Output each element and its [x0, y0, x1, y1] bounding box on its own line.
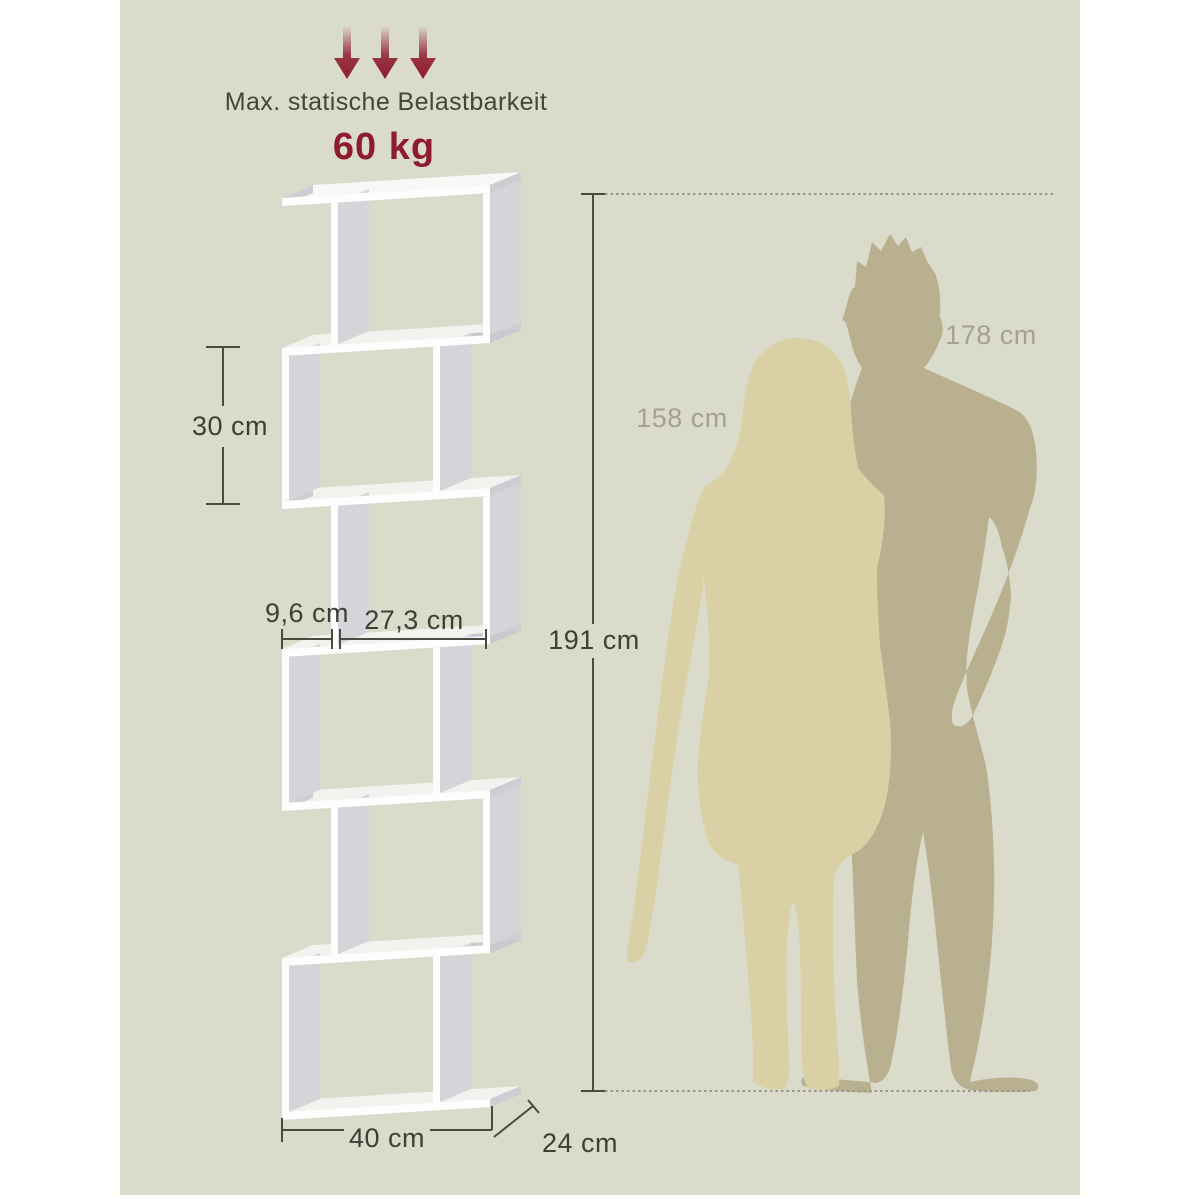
man-height-label: 178 cm [916, 321, 1066, 351]
product-dimension-infographic: Max. statische Belastbarkeit 60 kg 30 cm… [0, 0, 1200, 1200]
dim-inner-large-label: 27,3 cm [334, 606, 494, 636]
diagram-graphics [0, 0, 1200, 1200]
dim-cell-height-label: 30 cm [130, 412, 330, 442]
dim-total-width-label: 40 cm [312, 1124, 462, 1154]
woman-height-label: 158 cm [607, 404, 757, 434]
dim-total-height-label: 191 cm [519, 626, 669, 656]
load-arrows-icon [334, 26, 436, 79]
max-load-value: 60 kg [234, 127, 534, 169]
dim-total-depth-label: 24 cm [542, 1129, 692, 1159]
max-load-label: Max. statische Belastbarkeit [186, 89, 586, 117]
